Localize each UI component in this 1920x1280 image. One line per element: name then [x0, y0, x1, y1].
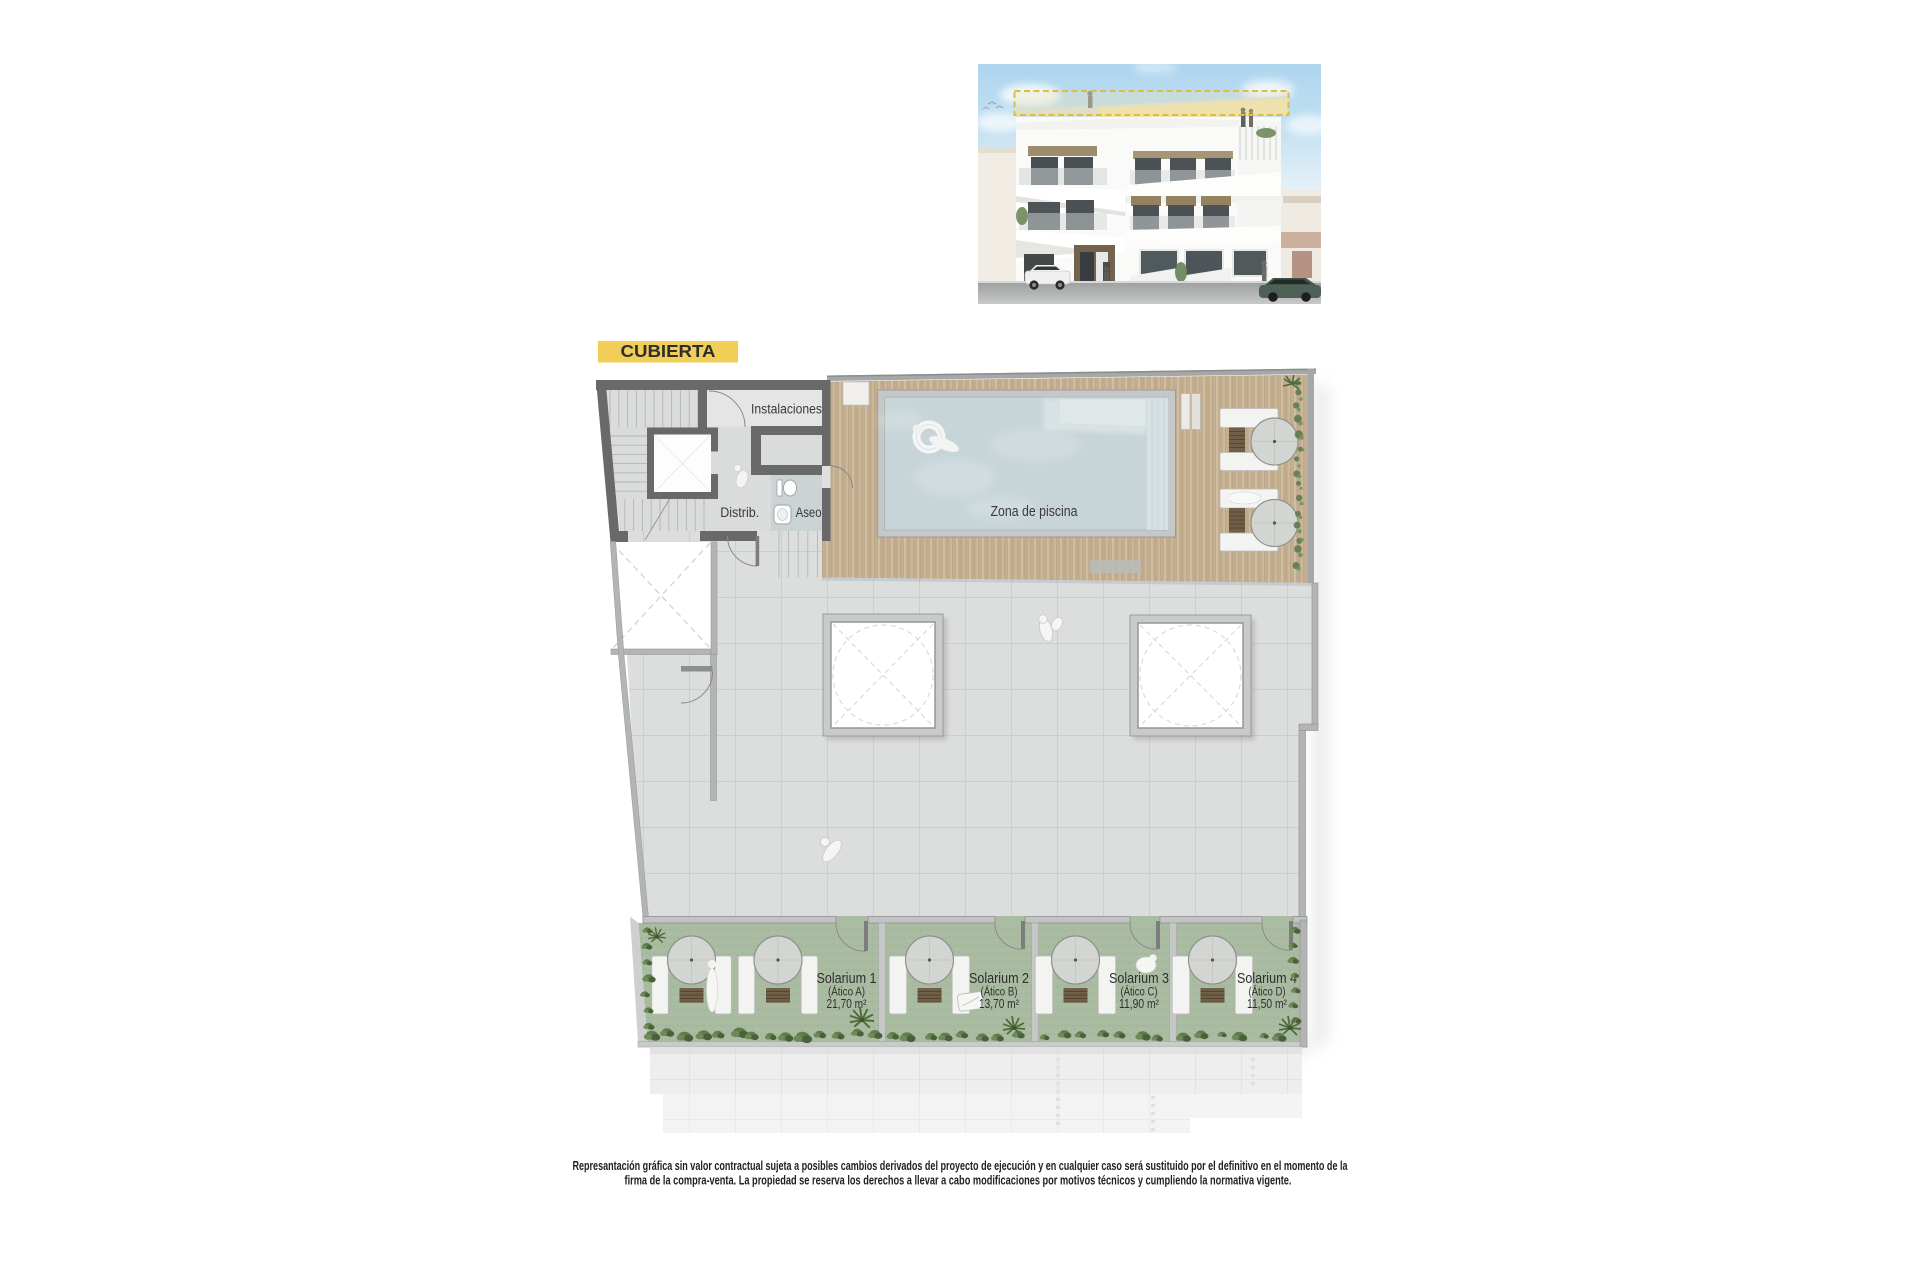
svg-text:11,90 m²: 11,90 m²: [1119, 997, 1159, 1011]
svg-text:Solarium 2: Solarium 2: [969, 971, 1029, 987]
svg-text:11,50 m²: 11,50 m²: [1247, 997, 1287, 1011]
svg-text:13,70 m²: 13,70 m²: [979, 997, 1019, 1011]
svg-text:firma de la compra-venta. La p: firma de la compra-venta. La propiedad s…: [625, 1173, 1292, 1188]
svg-text:Instalaciones: Instalaciones: [751, 402, 822, 417]
svg-text:CUBIERTA: CUBIERTA: [621, 341, 716, 361]
svg-text:Solarium 1: Solarium 1: [817, 971, 877, 987]
svg-text:Solarium 4: Solarium 4: [1237, 971, 1297, 987]
svg-text:Distrib.: Distrib.: [720, 505, 759, 520]
svg-text:Aseo: Aseo: [796, 505, 822, 520]
svg-text:Zona de piscina: Zona de piscina: [991, 504, 1079, 520]
svg-text:Represantación gráfica sin val: Represantación gráfica sin valor contrac…: [573, 1158, 1349, 1173]
svg-text:Solarium 3: Solarium 3: [1109, 971, 1169, 987]
